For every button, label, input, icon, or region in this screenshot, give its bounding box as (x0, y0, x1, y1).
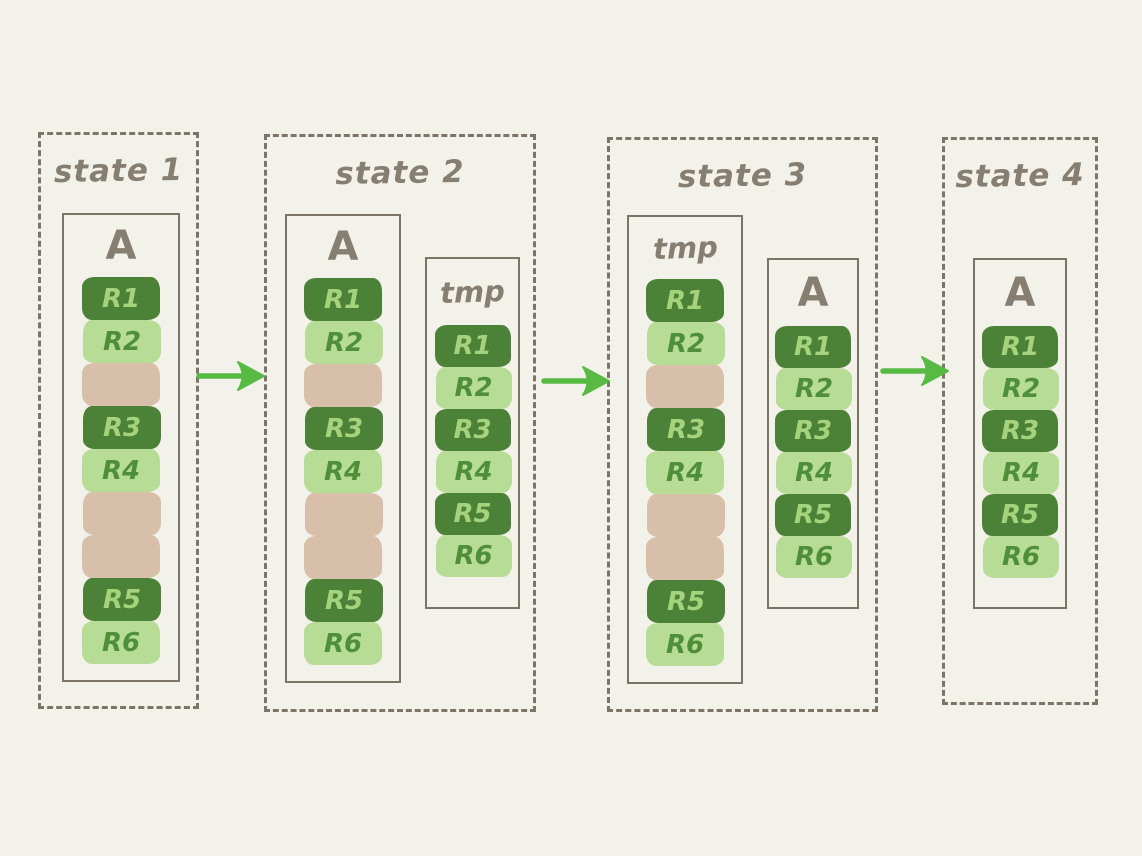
record-block-r4: R4 (983, 452, 1059, 494)
empty-slot (82, 363, 160, 406)
record-block-r1: R1 (646, 279, 724, 322)
empty-slot (304, 536, 382, 579)
right-arrow-icon (880, 353, 950, 389)
column-a: AR1R2R3R4R5R6 (973, 258, 1067, 609)
record-block-r4: R4 (646, 451, 724, 494)
record-block-r3: R3 (83, 406, 161, 449)
record-block-r2: R2 (776, 368, 852, 410)
record-block-r4: R4 (82, 449, 160, 492)
record-block-r5: R5 (647, 580, 725, 623)
record-block-r1: R1 (775, 326, 851, 368)
record-block-r5: R5 (305, 579, 383, 622)
state-3-panel: state 3 tmpR1R2R3R4R5R6AR1R2R3R4R5R6 (607, 137, 878, 712)
column-label: A (798, 260, 829, 326)
state-4-panel: state 4 AR1R2R3R4R5R6 (942, 137, 1098, 705)
empty-slot (646, 537, 724, 580)
record-block-r3: R3 (775, 410, 851, 452)
blocks-stack: R1R2R3R4R5R6 (775, 326, 851, 578)
record-block-r6: R6 (646, 623, 724, 666)
record-block-r1: R1 (82, 277, 160, 320)
record-block-r3: R3 (435, 409, 511, 451)
record-block-r4: R4 (436, 451, 512, 493)
blocks-stack: R1R2R3R4R5R6 (82, 277, 160, 664)
state-4-title: state 4 (945, 157, 1096, 196)
empty-slot (305, 493, 383, 536)
column-a: AR1R2R3R4R5R6 (767, 258, 859, 609)
column-a: AR1R2R3R4R5R6 (285, 214, 401, 683)
blocks-stack: R1R2R3R4R5R6 (304, 278, 382, 665)
column-tmp: tmpR1R2R3R4R5R6 (425, 257, 520, 609)
record-block-r2: R2 (436, 367, 512, 409)
record-block-r2: R2 (983, 368, 1059, 410)
right-arrow-icon (196, 358, 266, 394)
record-block-r4: R4 (304, 450, 382, 493)
blocks-stack: R1R2R3R4R5R6 (982, 326, 1058, 578)
empty-slot (647, 494, 725, 537)
record-block-r6: R6 (304, 622, 382, 665)
column-tmp: tmpR1R2R3R4R5R6 (627, 215, 743, 684)
record-block-r1: R1 (435, 325, 511, 367)
column-label: A (328, 216, 359, 278)
record-block-r6: R6 (82, 621, 160, 664)
state-3-title: state 3 (610, 156, 876, 197)
record-block-r1: R1 (982, 326, 1058, 368)
record-block-r2: R2 (647, 322, 725, 365)
record-block-r3: R3 (982, 410, 1058, 452)
record-block-r6: R6 (436, 535, 512, 577)
diagram-canvas: state 1 AR1R2R3R4R5R6 state 2 AR1R2R3R4R… (0, 0, 1142, 856)
empty-slot (304, 364, 382, 407)
record-block-r3: R3 (647, 408, 725, 451)
right-arrow-icon (541, 363, 611, 399)
record-block-r6: R6 (983, 536, 1059, 578)
blocks-stack: R1R2R3R4R5R6 (435, 325, 511, 577)
column-label: tmp (439, 258, 506, 326)
state-1-panel: state 1 AR1R2R3R4R5R6 (38, 132, 199, 709)
state-2-title: state 2 (267, 153, 534, 194)
empty-slot (82, 535, 160, 578)
state-2-panel: state 2 AR1R2R3R4R5R6tmpR1R2R3R4R5R6 (264, 134, 536, 712)
blocks-stack: R1R2R3R4R5R6 (646, 279, 724, 666)
record-block-r1: R1 (304, 278, 382, 321)
column-a: AR1R2R3R4R5R6 (62, 213, 180, 682)
empty-slot (83, 492, 161, 535)
column-label: A (106, 215, 137, 277)
record-block-r5: R5 (982, 494, 1058, 536)
column-label: A (1005, 260, 1036, 326)
record-block-r5: R5 (775, 494, 851, 536)
record-block-r5: R5 (435, 493, 511, 535)
record-block-r4: R4 (776, 452, 852, 494)
record-block-r3: R3 (305, 407, 383, 450)
record-block-r2: R2 (305, 321, 383, 364)
column-label: tmp (652, 216, 719, 280)
record-block-r5: R5 (83, 578, 161, 621)
record-block-r2: R2 (83, 320, 161, 363)
record-block-r6: R6 (776, 536, 852, 578)
empty-slot (646, 365, 724, 408)
state-1-title: state 1 (41, 152, 197, 191)
